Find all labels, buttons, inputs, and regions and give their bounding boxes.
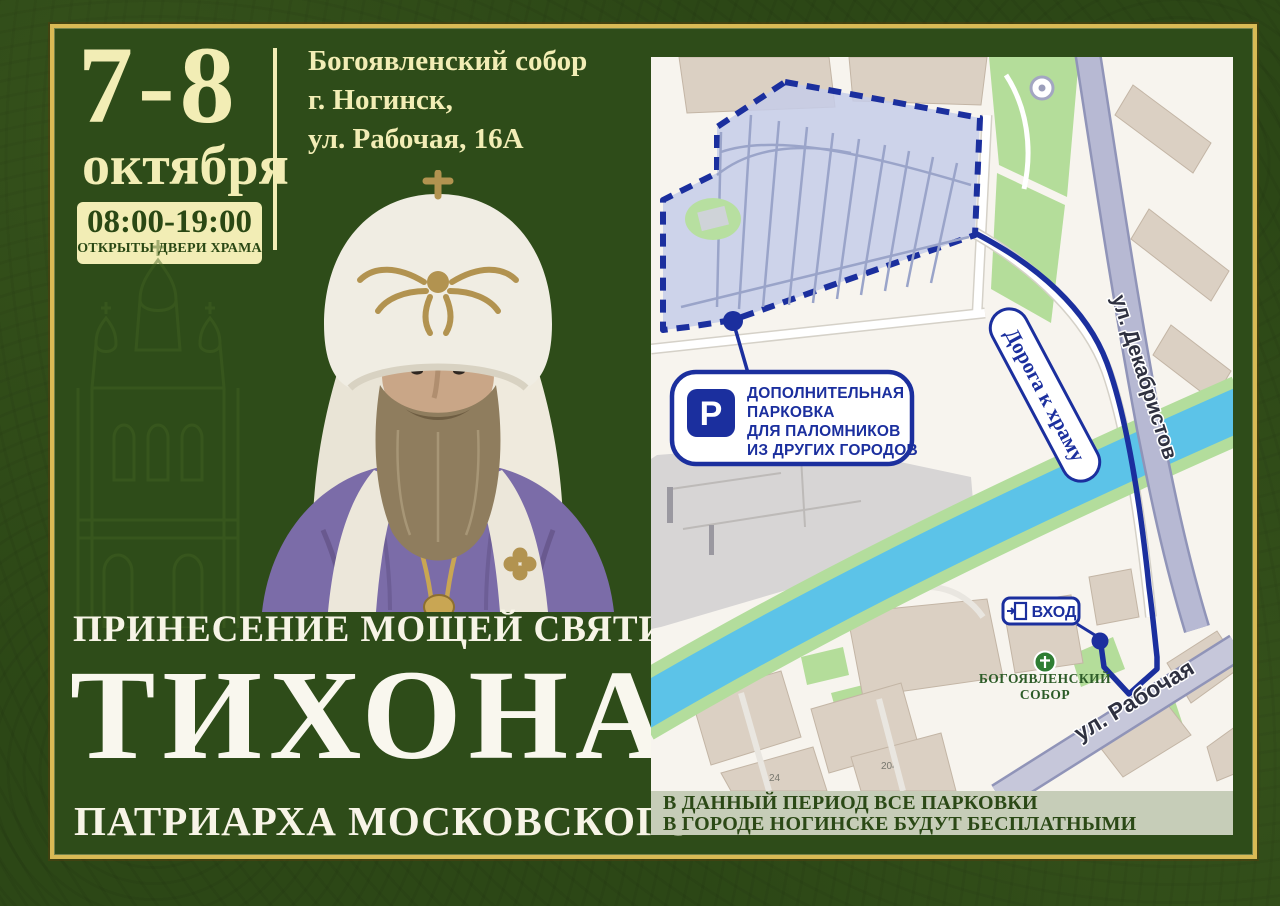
date-range: 7-8 [78, 30, 240, 140]
patriarch-title: ПАТРИАРХА МОСКОВСКОГО [74, 797, 695, 845]
building-number: 24 [769, 773, 781, 784]
mitre-cross-icon [426, 173, 450, 196]
patriarch-photo [228, 170, 648, 612]
saint-name-title: ТИХОНА [70, 640, 674, 791]
transport-stop-icon [1031, 77, 1053, 99]
venue-name: Богоявленский собор [308, 42, 587, 81]
svg-text:ИЗ ДРУГИХ ГОРОДОВ: ИЗ ДРУГИХ ГОРОДОВ [747, 442, 918, 459]
svg-text:P: P [700, 395, 723, 433]
parking-callout: P ДОПОЛНИТЕЛЬНАЯ ПАРКОВКА ДЛЯ ПАЛОМНИКОВ… [672, 372, 918, 464]
cathedral-label: БОГОЯВЛЕНСКИЙ [979, 671, 1111, 686]
city-map: 24 204 [651, 57, 1233, 835]
free-parking-notice: В ДАННЫЙ ПЕРИОД ВСЕ ПАРКОВКИ В ГОРОДЕ НО… [651, 791, 1233, 835]
entrance-label: ВХОД [1032, 604, 1077, 621]
poster: 7-8 октября Богоявленский собор г. Ногин… [0, 0, 1280, 906]
svg-text:ДЛЯ ПАЛОМНИКОВ: ДЛЯ ПАЛОМНИКОВ [747, 423, 901, 440]
map-canvas: 24 204 [651, 57, 1233, 791]
entrance-marker-dot [1092, 633, 1109, 650]
svg-text:СОБОР: СОБОР [1020, 687, 1070, 702]
svg-text:ДОПОЛНИТЕЛЬНАЯ: ДОПОЛНИТЕЛЬНАЯ [747, 385, 904, 402]
venue-address: Богоявленский собор г. Ногинск, ул. Рабо… [308, 42, 587, 159]
svg-text:ПАРКОВКА: ПАРКОВКА [747, 404, 835, 421]
venue-street: ул. Рабочая, 16А [308, 120, 587, 159]
parking-marker-dot [723, 311, 743, 331]
venue-city: г. Ногинск, [308, 81, 587, 120]
